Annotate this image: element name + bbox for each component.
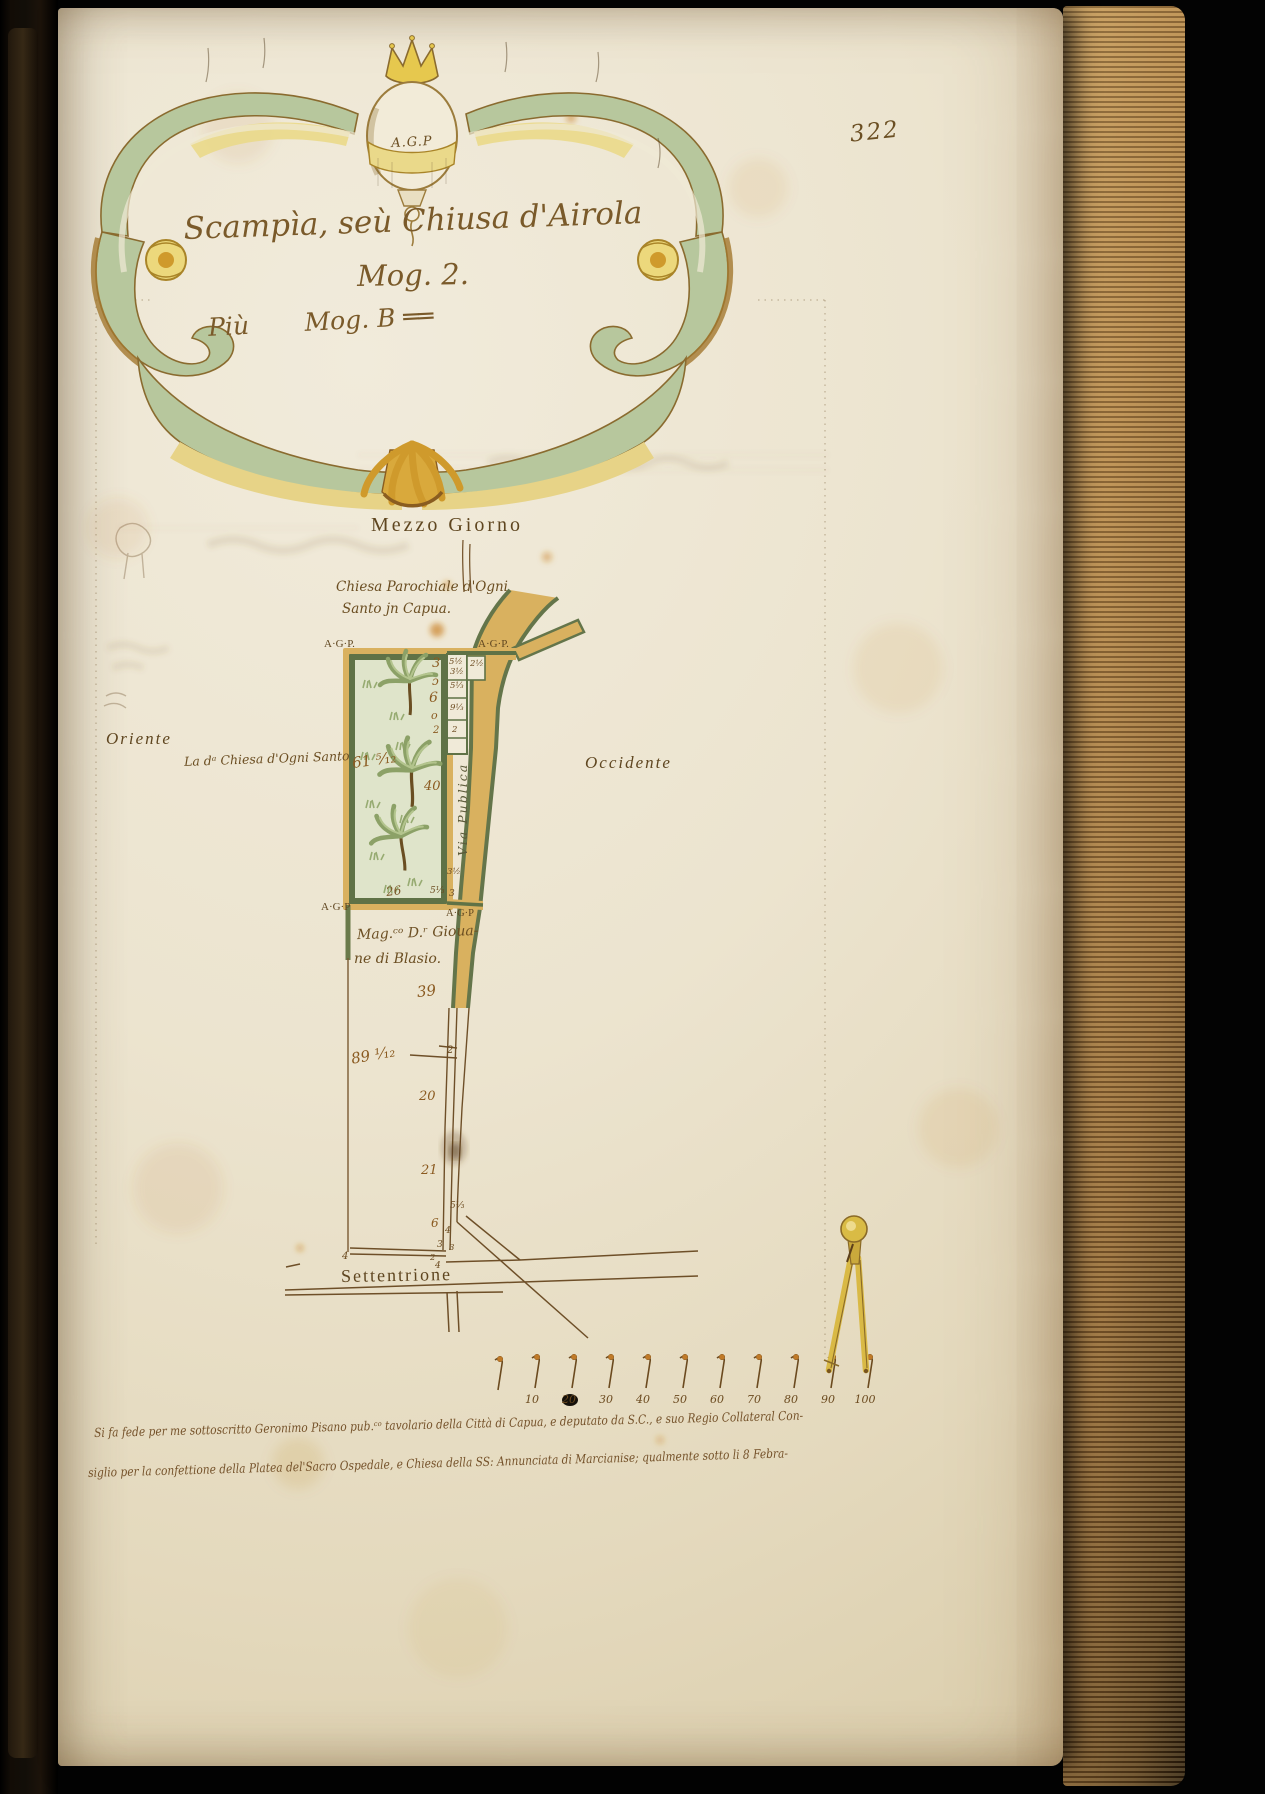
scale-label-40: 40 (631, 1394, 655, 1405)
measure-corner-small: 3½ (447, 868, 461, 877)
measure-cell-2: 2½ (470, 660, 484, 669)
scale-label-90: 90 (816, 1394, 840, 1405)
church-label-line1: Chiesa Parochiale d'Ogni (336, 580, 508, 595)
facing-page-edge (8, 28, 38, 1758)
measure-cell-3: 5⅓ (450, 682, 464, 691)
junction-num-7: 4 (342, 1252, 348, 1262)
junction-num-2: 4 (445, 1227, 451, 1236)
corner-mark-br: A·G·P (446, 908, 474, 920)
church-label-line2: Santo jn Capua. (342, 602, 451, 617)
junction-num-1: 6 (431, 1217, 439, 1229)
measure-cell-1: 3½ (450, 668, 464, 677)
book-fore-edge (1063, 6, 1185, 1786)
measure-edge-0: 3 (432, 657, 440, 670)
junction-num-4: 3 (449, 1244, 454, 1253)
manuscript-page: 322 Scampìa, seù Chiusa d'Airola Mog. 2.… (58, 8, 1063, 1766)
measure-strip-mid: 20 (419, 1090, 436, 1103)
measure-edge-3: o (431, 710, 438, 721)
cardinal-west: Occidente (585, 754, 672, 773)
road-label: Via Publica (456, 763, 470, 856)
page-number: 322 (849, 117, 901, 147)
measure-strip-tick: 2 (447, 1046, 453, 1056)
measure-edge-2: 6 (429, 691, 438, 705)
measure-strip-low: 21 (421, 1164, 438, 1177)
measure-below: 39 (416, 983, 437, 1000)
scale-label-30: 30 (594, 1394, 618, 1405)
book-gutter (0, 0, 58, 1794)
scale-label-100: 100 (851, 1394, 879, 1405)
corner-mark-bl: A·G·P (321, 901, 350, 913)
scale-label-20: 20 (557, 1394, 581, 1405)
road-continuation (410, 1008, 469, 1250)
scale-label-50: 50 (668, 1394, 692, 1405)
measure-right-mid: 40 (424, 780, 441, 793)
scale-label-10: 10 (520, 1394, 544, 1405)
junction-num-0: 5⅓ (450, 1202, 464, 1211)
junction-num-6: 4 (435, 1262, 441, 1271)
cardinal-east: Oriente (106, 730, 172, 749)
scanned-manuscript: 322 Scampìa, seù Chiusa d'Airola Mog. 2.… (0, 0, 1265, 1794)
measure-edge-4: 2 (433, 726, 439, 736)
compass-divider-icon (824, 1216, 868, 1373)
owner-label-line2: ne di Blasio. (354, 952, 441, 967)
measure-bottom-b: 5⅓ (430, 887, 444, 896)
corner-mark-tr: A·G·P. (478, 638, 509, 650)
junction-num-3: 3 (437, 1241, 443, 1250)
measure-cell-0: 5½ (449, 658, 463, 667)
scale-label-80: 80 (779, 1394, 803, 1405)
scale-label-70: 70 (742, 1394, 766, 1405)
scale-label-60: 60 (705, 1394, 729, 1405)
cardinal-south: Mezzo Giorno (342, 514, 552, 536)
corner-mark-tl: A·G·P. (324, 638, 355, 650)
measure-cell-5: 2 (452, 726, 457, 735)
measure-bottom-c: 3 (449, 890, 455, 899)
measure-bottom: 26 (385, 884, 402, 898)
measure-edge-1: ɔ (432, 675, 439, 687)
measure-cell-4: 9⅓ (450, 704, 464, 713)
